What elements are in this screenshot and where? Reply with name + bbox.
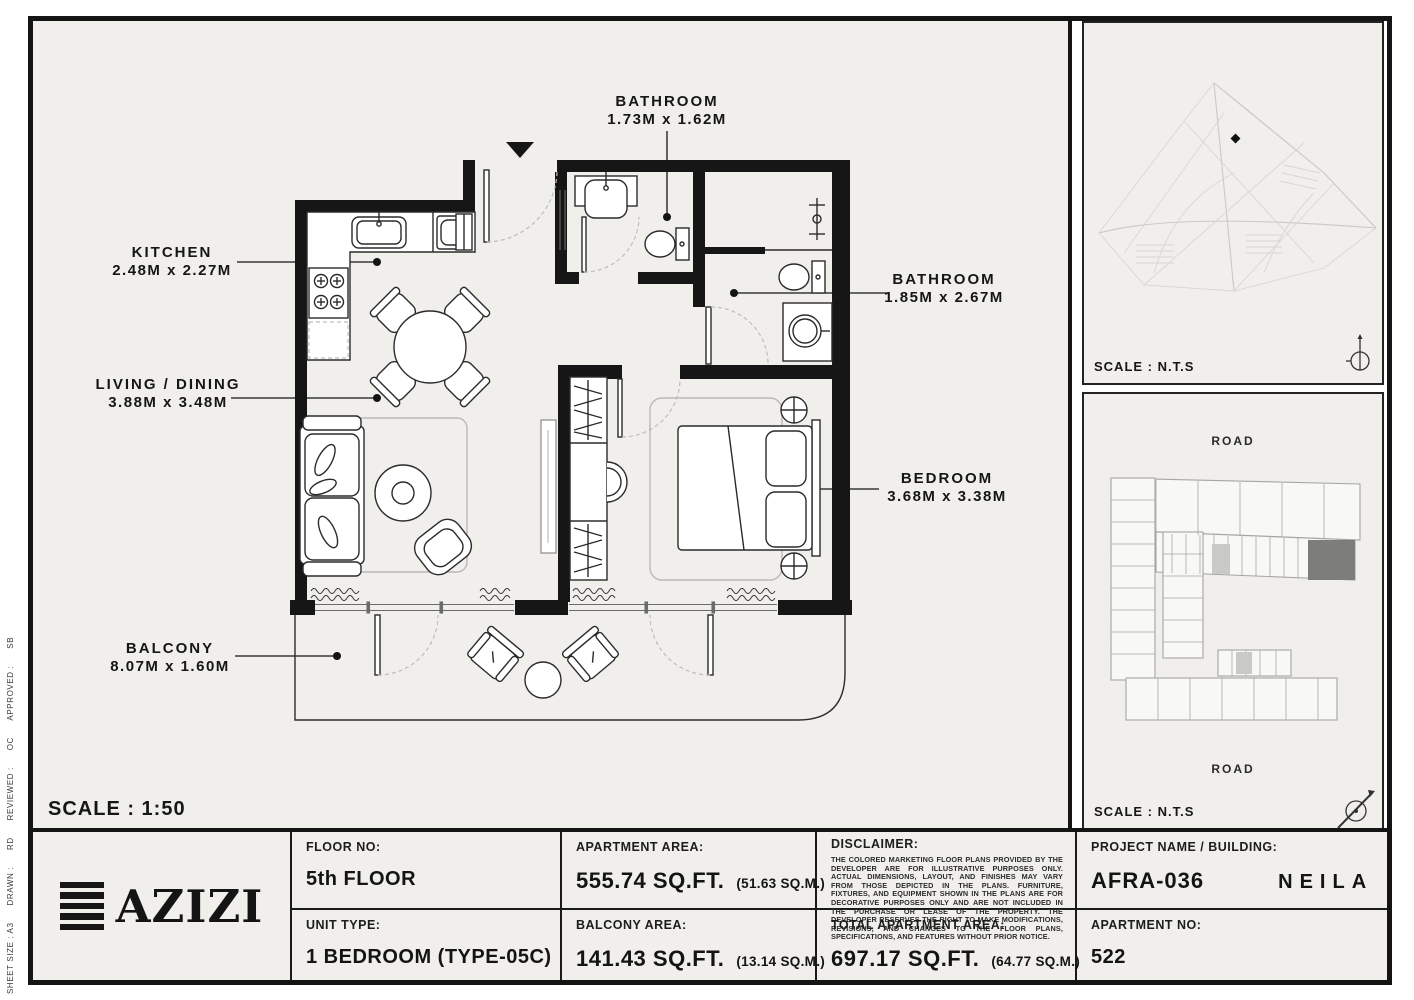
plan-scale-label: SCALE : 1:50 xyxy=(48,798,186,821)
room-dims: 8.07M x 1.60M xyxy=(110,658,230,676)
floor-plan-panel: BATHROOM 1.73M x 1.62M KITCHEN 2.48M x 2… xyxy=(33,21,1072,828)
total-area-metric: (64.77 SQ.M.) xyxy=(991,954,1080,969)
unit-type-cell: UNIT TYPE: 1 BEDROOM (TYPE-05C) xyxy=(290,910,560,980)
north-compass-icon xyxy=(1346,334,1369,370)
balcony-table xyxy=(525,662,561,698)
balcony-area-metric: (13.14 SQ.M.) xyxy=(736,954,825,969)
floor-plan-drawing xyxy=(33,21,1068,828)
balcony-area-value: 141.43 SQ.FT. xyxy=(576,946,724,972)
room-name: BEDROOM xyxy=(887,470,1007,488)
title-block: AZIZI FLOOR NO: 5th FLOOR UNIT TYPE: 1 B… xyxy=(33,828,1387,980)
balcony-area-label: BALCONY AREA: xyxy=(576,918,687,932)
azizi-logo-icon xyxy=(60,882,104,931)
project-name-cell: PROJECT NAME / BUILDING: AFRA-036 NEILA xyxy=(1075,832,1387,908)
entry-arrow-icon xyxy=(506,142,534,158)
balcony-area-cell: BALCONY AREA: 141.43 SQ.FT. (13.14 SQ.M.… xyxy=(560,910,815,980)
room-label-bathroom-ensuite: BATHROOM 1.85M x 2.67M xyxy=(884,271,1004,307)
project-name-label: PROJECT NAME / BUILDING: xyxy=(1091,840,1277,854)
key-plan-panel: ROAD ROAD SCALE : N.T.S xyxy=(1082,392,1384,830)
apartment-area-value: 555.74 SQ.FT. xyxy=(576,868,724,894)
toilet xyxy=(779,264,809,290)
bed xyxy=(678,420,820,556)
room-label-bedroom: BEDROOM 3.68M x 3.38M xyxy=(887,470,1007,506)
shower-icon xyxy=(809,198,825,240)
site-map-scale-label: SCALE : N.T.S xyxy=(1094,359,1194,374)
site-map-panel: SCALE : N.T.S xyxy=(1082,21,1384,385)
total-area-cell: TOTAL APARTMENT AREA: 697.17 SQ.FT. (64.… xyxy=(815,910,1075,980)
balcony-chair xyxy=(466,625,525,683)
room-dims: 2.48M x 2.27M xyxy=(112,262,232,280)
unit-type-value: 1 BEDROOM (TYPE-05C) xyxy=(306,946,552,969)
floor-no-value: 5th FLOOR xyxy=(306,868,416,891)
unit-type-label: UNIT TYPE: xyxy=(306,918,380,932)
apartment-no-label: APARTMENT NO: xyxy=(1091,918,1201,932)
nightstand xyxy=(781,397,807,423)
room-dims: 1.73M x 1.62M xyxy=(607,111,727,129)
apartment-area-cell: APARTMENT AREA: 555.74 SQ.FT. (51.63 SQ.… xyxy=(560,832,815,908)
apartment-no-value: 522 xyxy=(1091,946,1126,969)
room-dims: 1.85M x 2.67M xyxy=(884,289,1004,307)
tv-unit xyxy=(541,420,556,553)
disclaimer-label: DISCLAIMER: xyxy=(831,837,918,851)
floor-no-cell: FLOOR NO: 5th FLOOR xyxy=(290,832,560,908)
road-label-bottom: ROAD xyxy=(1211,762,1254,776)
floor-plan-sheet: SHEET SIZE : A3 DRAWN : RD REVIEWED : OC… xyxy=(0,0,1414,1000)
building-outline xyxy=(1111,478,1360,720)
building-name-value: NEILA xyxy=(1278,871,1373,894)
kitchen-sink xyxy=(352,212,406,248)
toilet xyxy=(645,231,675,257)
coffee-table xyxy=(375,465,431,521)
room-label-kitchen: KITCHEN 2.48M x 2.27M xyxy=(112,244,232,280)
dining-table xyxy=(369,286,491,408)
location-marker-icon xyxy=(1231,134,1241,144)
balcony-chair xyxy=(561,625,620,683)
room-name: BATHROOM xyxy=(607,93,727,111)
floor-no-label: FLOOR NO: xyxy=(306,840,381,854)
key-plan-scale-label: SCALE : N.T.S xyxy=(1094,804,1194,819)
ensuite-fixtures xyxy=(706,198,832,364)
bathroom-top-fixtures xyxy=(575,172,689,272)
room-name: KITCHEN xyxy=(112,244,232,262)
room-label-bathroom-top: BATHROOM 1.73M x 1.62M xyxy=(607,93,727,129)
pillow xyxy=(766,492,806,547)
total-area-label: TOTAL APARTMENT AREA: xyxy=(831,918,1005,932)
sheet-revision-strip: SHEET SIZE : A3 DRAWN : RD REVIEWED : OC… xyxy=(6,738,26,994)
road-label-top: ROAD xyxy=(1211,434,1254,448)
room-name: BATHROOM xyxy=(884,271,1004,289)
apartment-area-metric: (51.63 SQ.M.) xyxy=(736,876,825,891)
bedroom-door xyxy=(618,379,680,437)
curtains xyxy=(311,589,775,601)
room-label-living: LIVING / DINING 3.88M x 3.48M xyxy=(95,376,240,412)
room-dims: 3.68M x 3.38M xyxy=(887,488,1007,506)
north-compass-icon xyxy=(1338,790,1375,828)
room-dims: 3.88M x 3.48M xyxy=(95,394,240,412)
brand-name: AZIZI xyxy=(116,880,264,933)
highlighted-unit xyxy=(1308,540,1355,580)
room-name: BALCONY xyxy=(110,640,230,658)
disclaimer-cell: DISCLAIMER: THE COLORED MARKETING FLOOR … xyxy=(815,832,1075,908)
site-map-drawing xyxy=(1084,23,1382,383)
apartment-area-label: APARTMENT AREA: xyxy=(576,840,704,854)
project-name-value: AFRA-036 xyxy=(1091,868,1204,894)
apartment-no-cell: APARTMENT NO: 522 xyxy=(1075,910,1387,980)
entry-door xyxy=(484,170,557,242)
sofa xyxy=(300,416,364,576)
nightstand xyxy=(781,553,807,579)
room-label-balcony: BALCONY 8.07M x 1.60M xyxy=(110,640,230,676)
room-name: LIVING / DINING xyxy=(95,376,240,394)
total-area-value: 697.17 SQ.FT. xyxy=(831,946,979,972)
brand-logo: AZIZI xyxy=(33,832,290,980)
pillow xyxy=(766,431,806,486)
stove xyxy=(309,268,348,318)
